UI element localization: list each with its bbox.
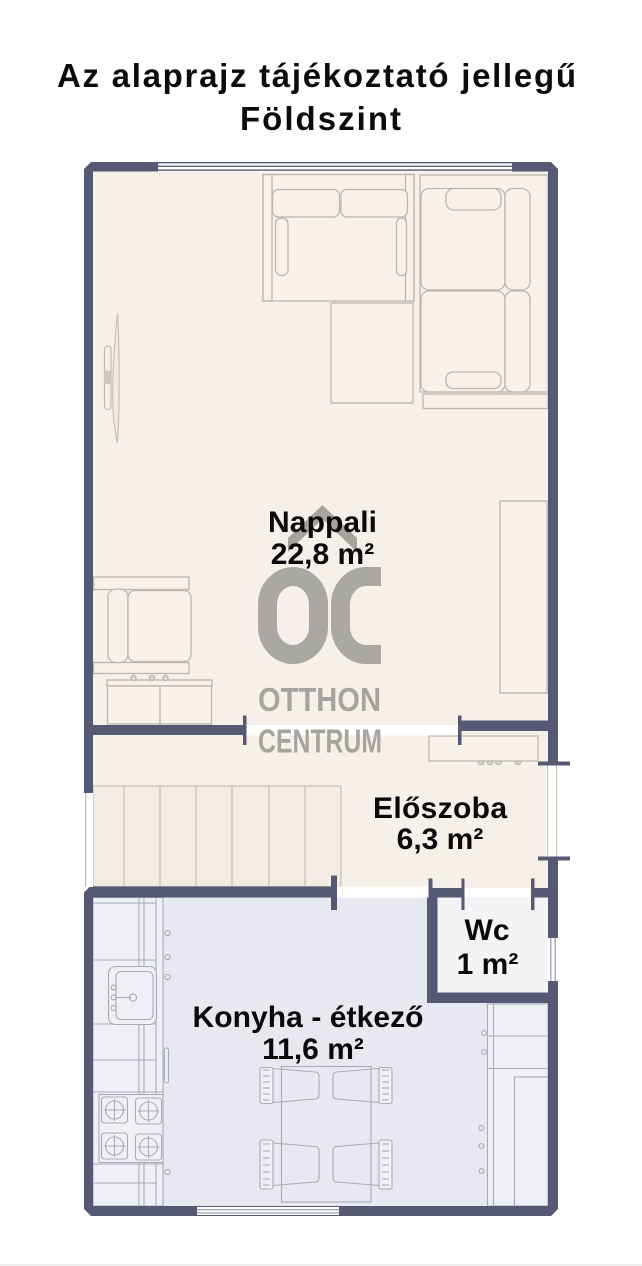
svg-text:Földszint: Földszint <box>240 100 401 137</box>
svg-text:6,3 m²: 6,3 m² <box>397 823 484 856</box>
svg-text:OTTHON: OTTHON <box>258 682 381 719</box>
svg-text:1 m²: 1 m² <box>457 948 519 981</box>
svg-text:Az alaprajz tájékoztató jelleg: Az alaprajz tájékoztató jellegű <box>57 57 576 94</box>
svg-text:22,8 m²: 22,8 m² <box>271 538 374 571</box>
svg-text:Nappali: Nappali <box>268 506 377 539</box>
svg-text:Konyha - étkező: Konyha - étkező <box>193 1001 424 1034</box>
svg-text:Előszoba: Előszoba <box>373 792 507 825</box>
svg-text:Wc: Wc <box>465 914 510 947</box>
svg-text:11,6 m²: 11,6 m² <box>262 1033 364 1066</box>
svg-text:CENTRUM: CENTRUM <box>258 724 382 761</box>
